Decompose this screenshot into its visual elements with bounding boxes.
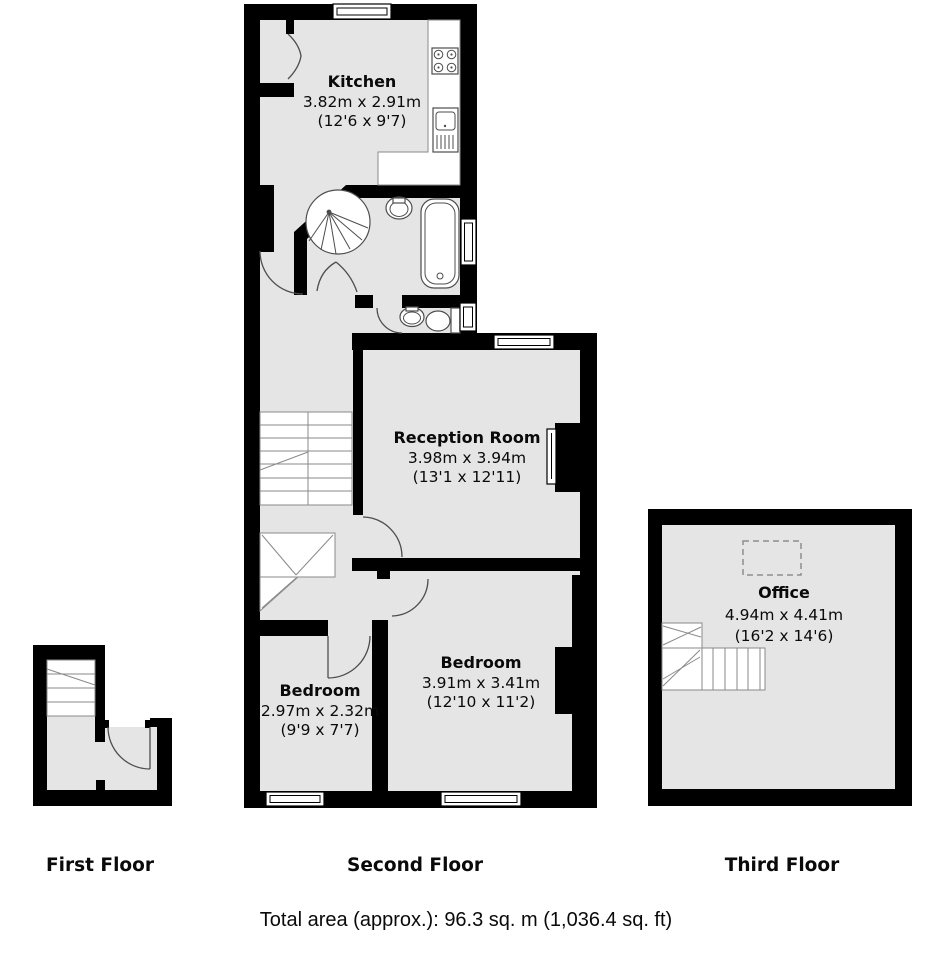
reception-room-label: Reception Room 3.98m x 3.94m (13'1 x 12'…	[393, 428, 540, 486]
bedroom-right-wall	[572, 575, 597, 791]
third-floor-label: Third Floor	[725, 855, 840, 876]
small-bedroom-top-wall	[260, 620, 328, 636]
window	[441, 792, 521, 806]
door-stub	[377, 571, 390, 579]
bathtub-icon	[421, 199, 459, 288]
room-dimensions-imperial: (13'1 x 12'11)	[413, 468, 522, 486]
room-dimensions-metric: 3.82m x 2.91m	[303, 93, 421, 111]
room-name: Bedroom	[440, 653, 521, 672]
wc-washbasin-tap	[406, 307, 418, 311]
reception-bottom-wall	[352, 558, 597, 571]
toilet-cistern	[451, 308, 460, 333]
room-name: Kitchen	[328, 72, 397, 91]
room-name: Reception Room	[393, 428, 540, 447]
bathroom-left-wall	[294, 232, 307, 295]
window	[266, 792, 324, 806]
staircase-up	[47, 660, 95, 716]
toilet-icon	[426, 311, 450, 331]
door-leaf	[301, 250, 305, 284]
second-floor-plan: Kitchen 3.82m x 2.91m (12'6 x 9'7) Recep…	[244, 4, 597, 808]
room-dimensions-metric: 3.91m x 3.41m	[422, 674, 540, 692]
window	[494, 335, 554, 349]
room-dimensions-imperial: (12'10 x 11'2)	[427, 693, 536, 711]
room-dimensions-metric: 3.98m x 3.94m	[408, 449, 526, 467]
bathroom-wc-divider	[402, 295, 460, 308]
room-dimensions-imperial: (9'9 x 7'7)	[280, 721, 359, 739]
hob-icon	[432, 48, 458, 74]
staircase-up	[260, 412, 352, 505]
bathroom-wc-divider	[355, 295, 373, 308]
floorplan-drawing: Kitchen 3.82m x 2.91m (12'6 x 9'7) Recep…	[0, 0, 940, 957]
reception-top-wall	[352, 333, 597, 350]
reception-chimney-breast	[555, 423, 580, 492]
room-name: Bedroom	[279, 681, 360, 700]
wall-stub	[286, 18, 294, 34]
first-floor-plan	[33, 645, 172, 806]
left-wall-inset	[258, 185, 274, 252]
wall-stub	[96, 780, 105, 790]
second-floor-label: Second Floor	[347, 855, 484, 876]
reception-left-wall	[353, 350, 363, 515]
room-name: Office	[758, 583, 810, 602]
room-dimensions-metric: 4.94m x 4.41m	[725, 606, 843, 624]
floorplan-page: Kitchen 3.82m x 2.91m (12'6 x 9'7) Recep…	[0, 0, 940, 957]
room-dimensions-imperial: (12'6 x 9'7)	[318, 112, 407, 130]
bathroom-top-wall	[352, 185, 460, 198]
hob-burner-dot	[437, 66, 439, 68]
first-floor-label: First Floor	[46, 855, 155, 876]
door-frame-mark	[145, 720, 150, 728]
entry-recess-wall	[244, 83, 294, 97]
room-dimensions-imperial: (16'2 x 14'6)	[735, 627, 834, 645]
corner-shower-icon	[306, 190, 370, 254]
hob-burner-dot	[437, 53, 439, 55]
sink-drain	[444, 125, 446, 127]
exterior-wall	[105, 790, 150, 806]
internal-wall	[95, 660, 105, 742]
washbasin-tap	[393, 198, 405, 203]
total-area-text: Total area (approx.): 96.3 sq. m (1,036.…	[260, 909, 672, 931]
hob-burner-dot	[450, 53, 452, 55]
door-frame-mark	[104, 720, 109, 728]
bedroom-chimney-breast	[555, 647, 573, 714]
hob-burner-dot	[450, 66, 452, 68]
window	[461, 219, 476, 265]
room-dimensions-metric: 2.97m x 2.32m	[261, 702, 379, 720]
window	[333, 4, 391, 19]
third-floor-plan: Office 4.94m x 4.41m (16'2 x 14'6)	[648, 509, 912, 806]
